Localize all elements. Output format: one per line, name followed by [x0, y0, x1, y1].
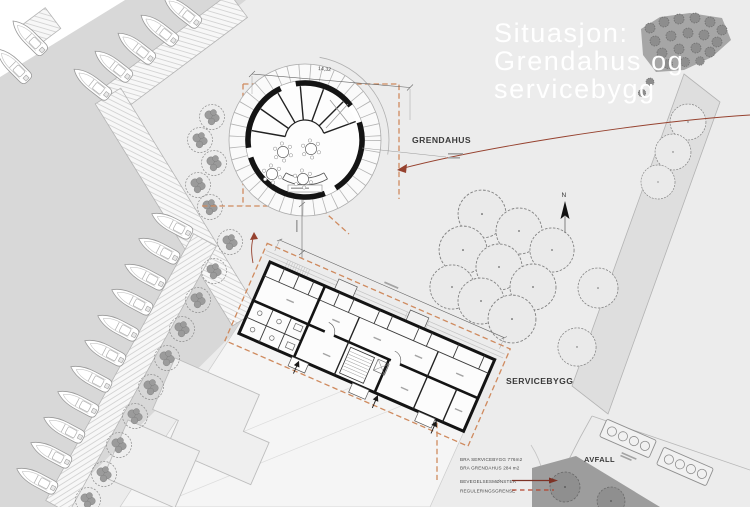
chair [269, 164, 272, 167]
chair [282, 159, 285, 162]
chair [293, 174, 296, 177]
site-plan-canvas: 14,32 [0, 0, 750, 530]
page-title-line: Grendahus og [494, 46, 684, 76]
north-label: N [562, 192, 567, 199]
chair [274, 156, 277, 159]
bush-icon [705, 47, 715, 57]
bush-icon [696, 57, 705, 66]
chair [294, 183, 297, 186]
chair [263, 178, 266, 181]
bush-icon [712, 37, 722, 47]
tree-canopy-icon [578, 268, 618, 308]
legend-area-line: BRA SERVICEBYGG 776m2 [460, 457, 523, 462]
chair [301, 144, 304, 147]
bush-icon [699, 30, 709, 40]
chair [280, 142, 283, 145]
chair [317, 151, 320, 154]
bush-icon [666, 31, 676, 41]
chair [288, 145, 291, 148]
chair [273, 147, 276, 150]
servicebygg-label: SERVICEBYGG [506, 376, 573, 386]
bush-icon [645, 23, 655, 33]
bush-icon [691, 43, 701, 53]
chair [309, 181, 312, 184]
chair [277, 167, 280, 170]
tree-canopy-icon [655, 134, 691, 170]
chair [308, 139, 311, 142]
legend-area-line: BRA GRENDAHUS 284 m2 [460, 466, 520, 471]
tree-canopy-icon [641, 165, 675, 199]
chair [310, 156, 313, 159]
bush-icon [705, 17, 715, 27]
bush-icon [717, 25, 727, 35]
chair [271, 181, 274, 184]
chair [308, 172, 311, 175]
chair [316, 142, 319, 145]
bush-icon [690, 13, 700, 23]
tree-canopy-icon [550, 472, 580, 502]
round-table [277, 146, 288, 157]
legend-boundary-label: REGULERINGSGRENSE [460, 489, 515, 494]
tree-canopy-icon [558, 328, 596, 366]
site-plan-page: 14,32 [0, 0, 750, 530]
chair [278, 176, 281, 179]
round-table [305, 143, 316, 154]
bush-icon [650, 36, 660, 46]
tree-canopy-icon [488, 295, 536, 343]
chair [262, 169, 265, 172]
chair [289, 154, 292, 157]
bush-icon [674, 14, 684, 24]
grendahus-dimension: 14,32 [318, 66, 332, 73]
page-margin-bottom [0, 507, 750, 530]
avfall-label: AVFALL [584, 455, 615, 464]
round-table [297, 173, 308, 184]
bush-icon [683, 28, 693, 38]
chair [300, 169, 303, 172]
round-table [266, 168, 277, 179]
page-title-line: Situasjon: [494, 18, 629, 48]
bush-icon [659, 17, 669, 27]
legend-movement-label: BEVEGELSESMØNSTER [460, 479, 517, 484]
grendahus-label: GRENDAHUS [412, 135, 471, 145]
chair [302, 153, 305, 156]
chair [302, 186, 305, 189]
page-title-line: servicebygg [494, 74, 656, 104]
